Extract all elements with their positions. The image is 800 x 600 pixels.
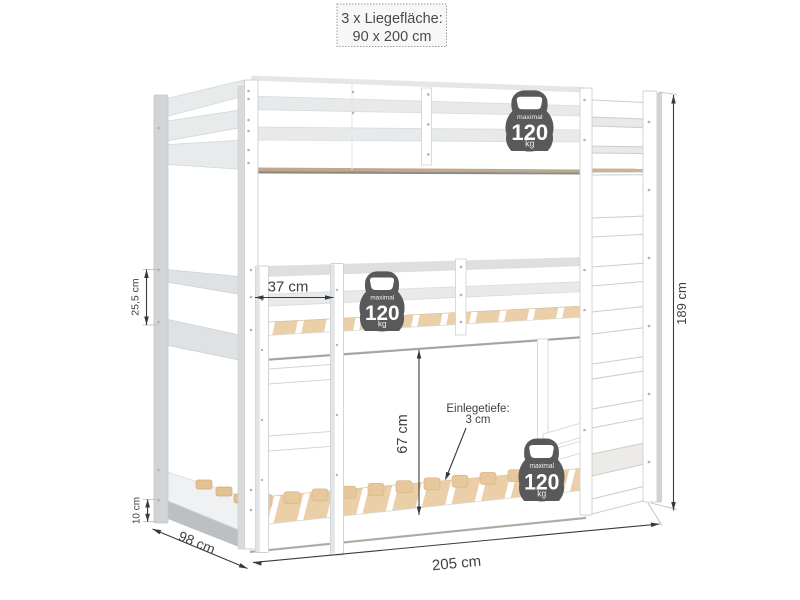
svg-text:3 cm: 3 cm [466,414,491,426]
svg-text:205 cm: 205 cm [431,553,482,575]
svg-text:10 cm: 10 cm [132,497,143,524]
svg-text:kg: kg [537,488,546,498]
svg-text:maximal: maximal [370,294,394,301]
svg-text:189 cm: 189 cm [674,282,689,325]
svg-text:kg: kg [525,139,534,149]
svg-text:67 cm: 67 cm [395,414,411,454]
svg-text:37 cm: 37 cm [268,279,309,296]
svg-text:kg: kg [378,319,387,329]
svg-text:3 x Liegefläche:: 3 x Liegefläche: [341,11,443,27]
svg-text:25,5 cm: 25,5 cm [130,278,142,316]
svg-text:90 x 200 cm: 90 x 200 cm [353,29,432,45]
